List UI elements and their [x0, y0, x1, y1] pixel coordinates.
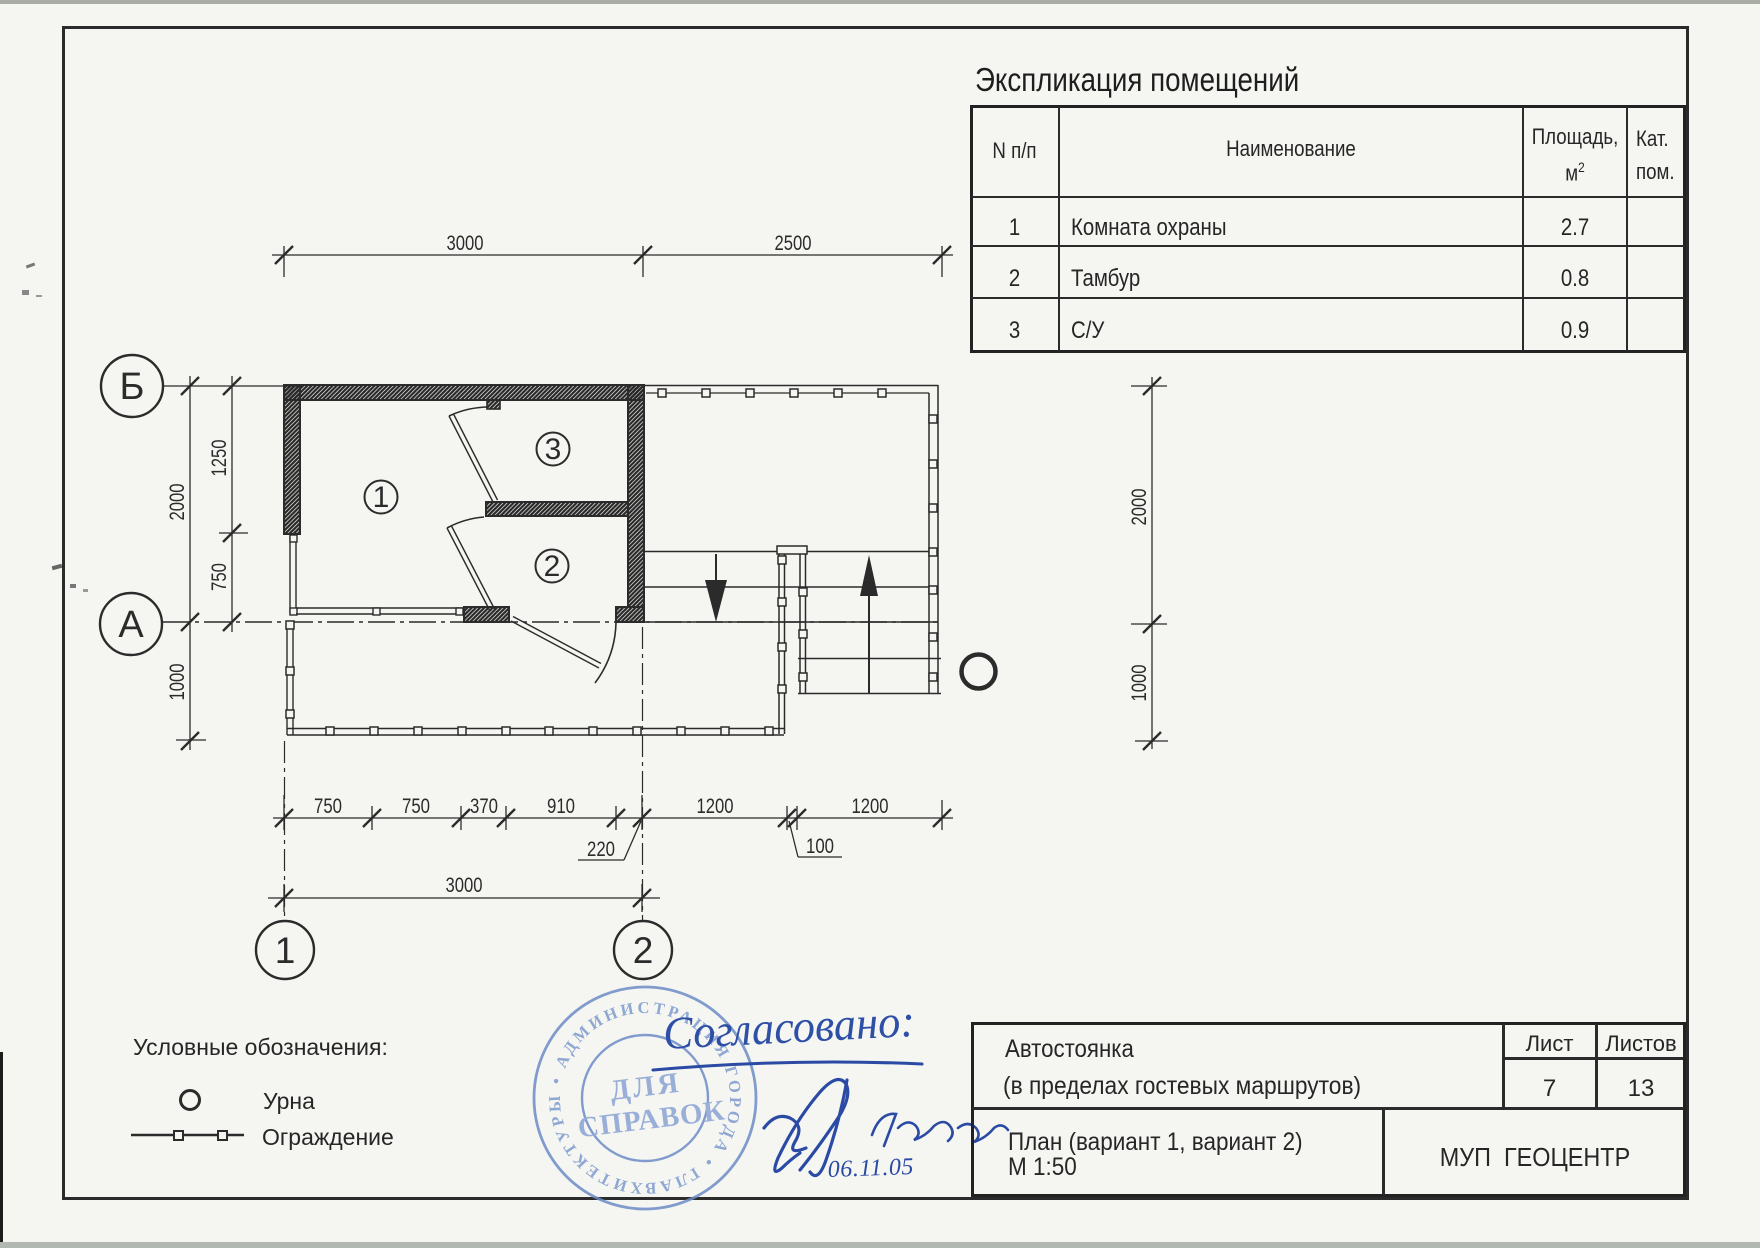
svg-text:Б: Б [120, 366, 145, 408]
svg-text:1: 1 [275, 930, 296, 971]
svg-text:2: 2 [633, 930, 654, 971]
svg-text:2000: 2000 [1128, 489, 1151, 526]
svg-text:1250: 1250 [208, 440, 231, 477]
svg-text:1000: 1000 [166, 664, 189, 701]
svg-text:1200: 1200 [852, 795, 889, 818]
svg-text:100: 100 [806, 835, 834, 858]
svg-text:06.11.05: 06.11.05 [827, 1154, 914, 1183]
svg-text:3000: 3000 [446, 874, 483, 897]
svg-text:220: 220 [587, 838, 615, 861]
svg-text:370: 370 [470, 795, 498, 818]
svg-text:750: 750 [402, 795, 430, 818]
svg-text:2000: 2000 [166, 484, 189, 521]
svg-text:Согласовано:: Согласовано: [662, 995, 916, 1059]
svg-text:750: 750 [314, 795, 342, 818]
svg-text:3: 3 [545, 433, 562, 466]
svg-text:А: А [118, 604, 144, 646]
svg-text:910: 910 [547, 795, 575, 818]
svg-text:3000: 3000 [447, 232, 484, 255]
svg-text:1200: 1200 [697, 795, 734, 818]
svg-text:1: 1 [373, 481, 390, 514]
svg-text:750: 750 [208, 563, 231, 591]
svg-text:1000: 1000 [1128, 665, 1151, 702]
svg-text:2500: 2500 [775, 232, 812, 255]
svg-text:2: 2 [544, 550, 561, 583]
